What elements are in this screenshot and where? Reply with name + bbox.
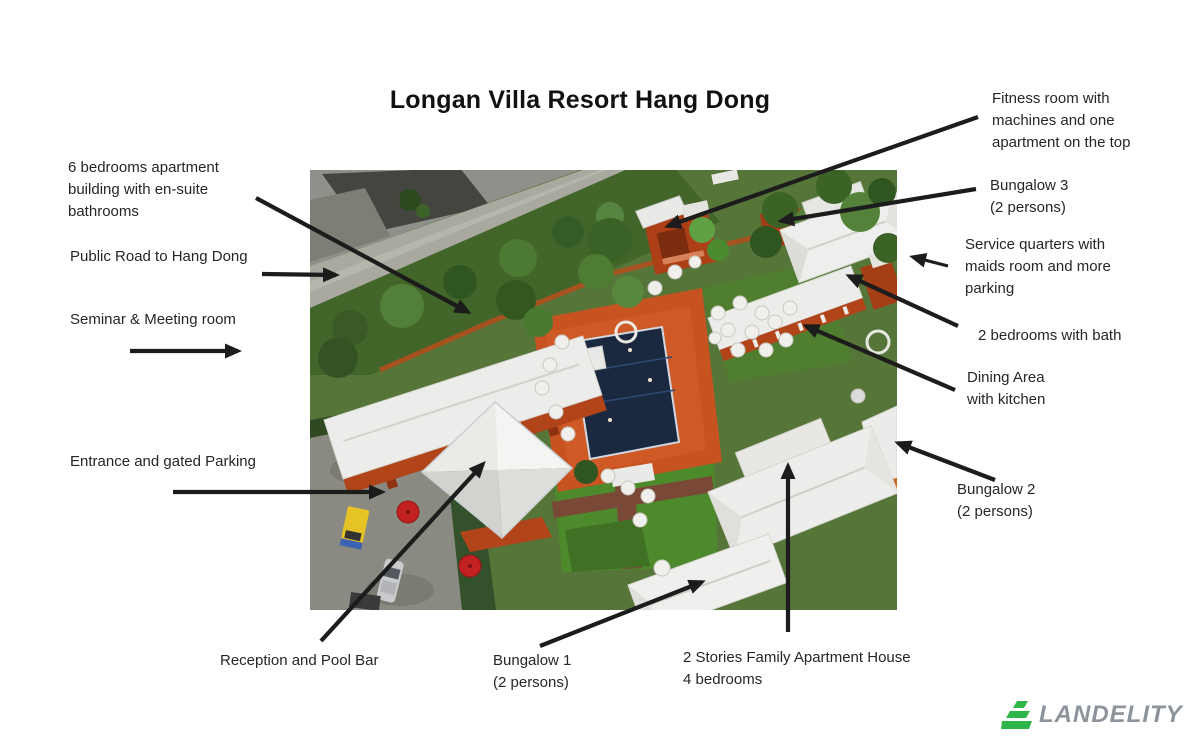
entrance-label: Entrance and gated Parking	[70, 451, 256, 473]
bungalow1-label: Bungalow 1 (2 persons)	[493, 650, 571, 694]
landelity-logo: LANDELITY	[1001, 700, 1183, 730]
bungalow3-label: Bungalow 3 (2 persons)	[990, 175, 1068, 219]
fitness-label: Fitness room with machines and one apart…	[992, 88, 1130, 154]
logo-text: LANDELITY	[1039, 701, 1183, 729]
reception-label: Reception and Pool Bar	[220, 650, 378, 672]
dining-label: Dining Area with kitchen	[967, 367, 1045, 411]
aerial-photo-art	[310, 170, 897, 610]
terraced-land-icon	[1001, 700, 1035, 730]
arrow-service-quarters	[913, 257, 948, 266]
annotated-resort-map: Longan Villa Resort Hang Dong	[0, 0, 1200, 741]
seminar-label: Seminar & Meeting room	[70, 309, 236, 331]
six-bedrooms-label: 6 bedrooms apartment building with en-su…	[68, 157, 219, 223]
family-apartment-label: 2 Stories Family Apartment House 4 bedro…	[683, 647, 911, 691]
aerial-photo	[310, 170, 897, 610]
arrow-bungalow2	[898, 443, 995, 480]
two-bedrooms-label: 2 bedrooms with bath	[978, 325, 1121, 347]
service-quarters-label: Service quarters with maids room and mor…	[965, 234, 1111, 300]
page-title: Longan Villa Resort Hang Dong	[0, 86, 1160, 115]
satellite-dish	[851, 389, 865, 403]
public-road-label: Public Road to Hang Dong	[70, 246, 248, 268]
bungalow2-label: Bungalow 2 (2 persons)	[957, 479, 1035, 523]
